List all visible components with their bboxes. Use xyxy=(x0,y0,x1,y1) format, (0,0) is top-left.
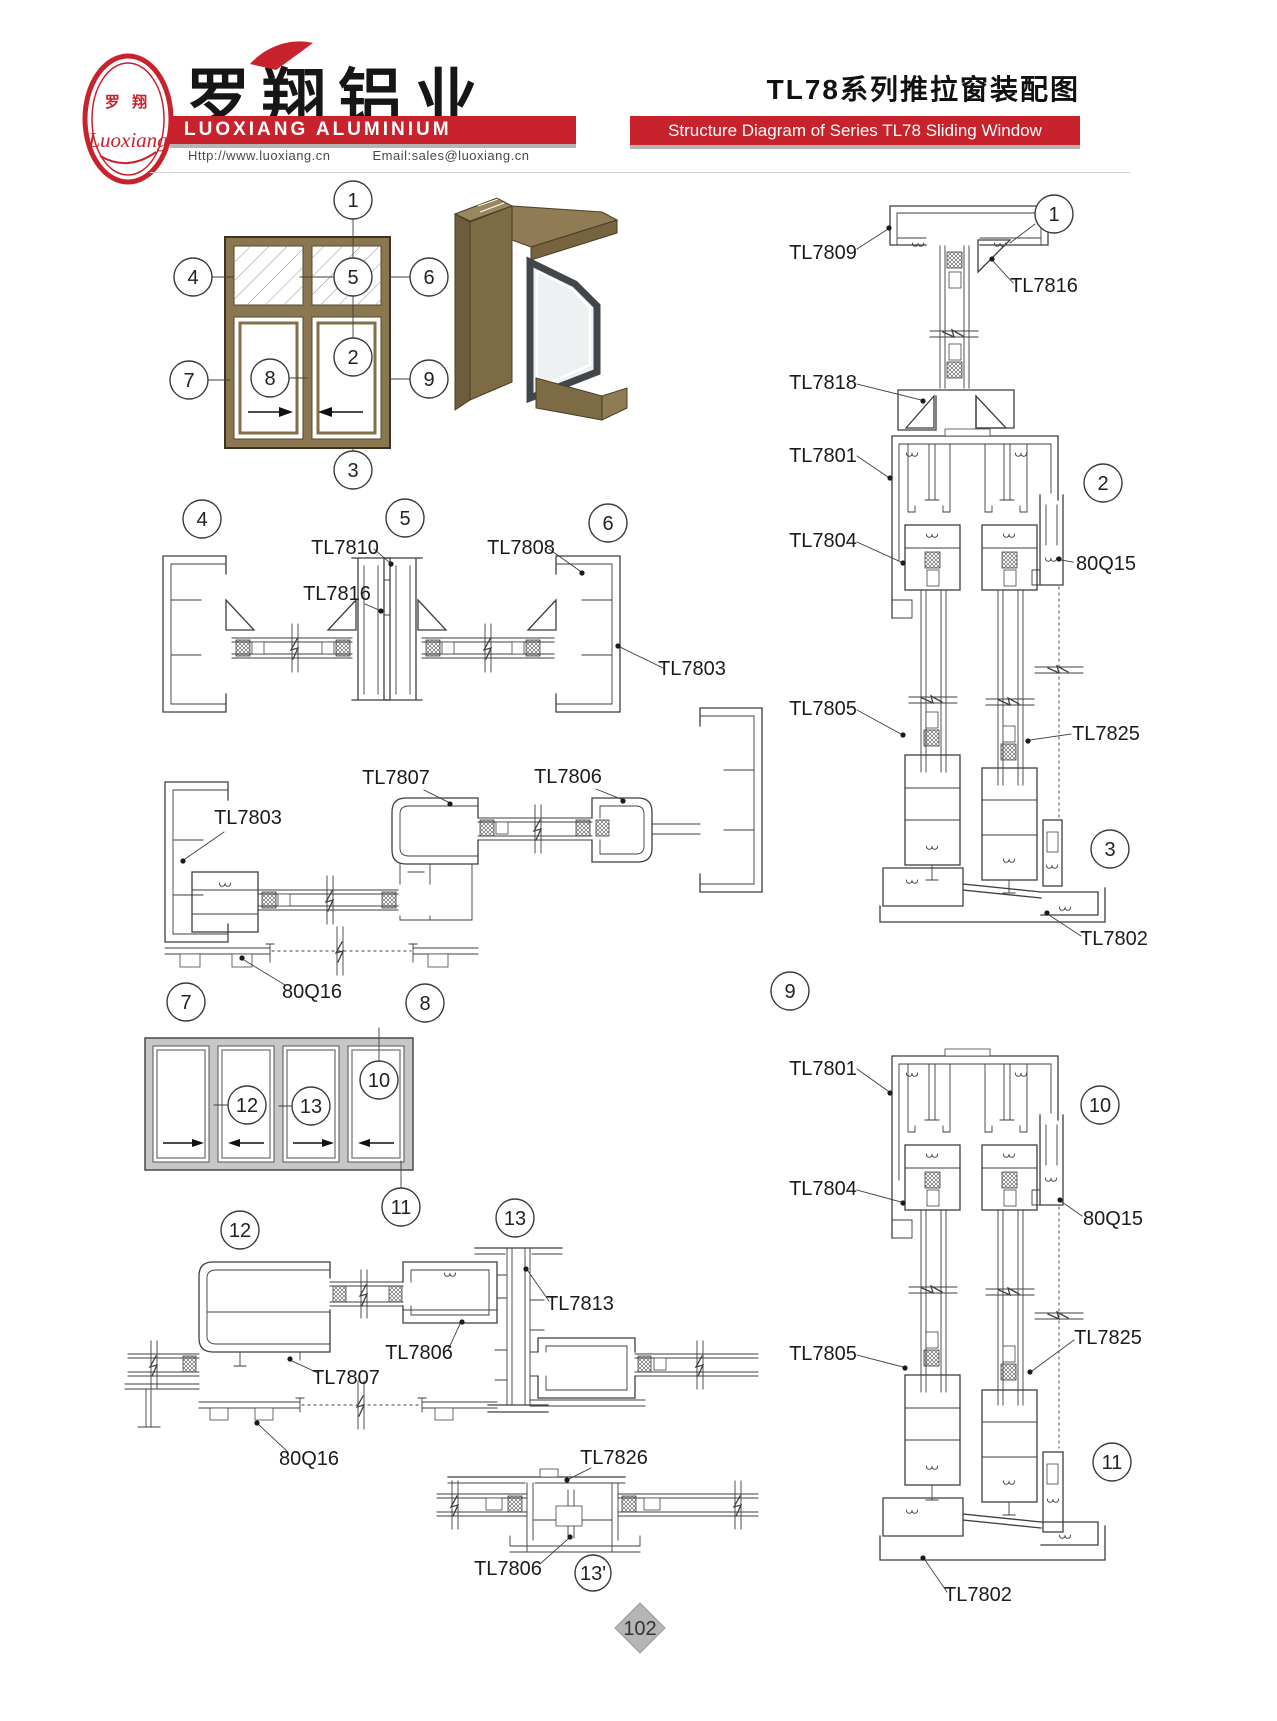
svg-text:4: 4 xyxy=(187,267,198,289)
svg-text:8: 8 xyxy=(264,368,275,390)
callout-2-detail: 2 xyxy=(1084,464,1122,502)
callout-9-section: 9 xyxy=(771,972,809,1010)
callout-12-section: 12 xyxy=(221,1211,259,1249)
part-label-tl7804-b: TL7804 xyxy=(789,1178,857,1200)
catalog-page: { "header": { "logo": { "cn": "罗 翔", "sc… xyxy=(0,0,1277,1721)
part-label-tl7807: TL7807 xyxy=(362,767,430,789)
part-label-tl7816: TL7816 xyxy=(303,583,371,605)
svg-text:4: 4 xyxy=(196,509,207,531)
logo-script-text: Luoxiang xyxy=(87,128,167,152)
callout-13: 13 xyxy=(292,1087,330,1125)
callout-7: 7 xyxy=(170,361,208,399)
company-logo: 罗 翔 Luoxiang xyxy=(80,52,176,188)
callout-1: 1 xyxy=(334,181,372,219)
svg-text:5: 5 xyxy=(399,508,410,530)
part-label-80q15: 80Q15 xyxy=(1076,553,1136,575)
svg-text:8: 8 xyxy=(419,993,430,1015)
callout-6-section: 6 xyxy=(589,504,627,542)
callout-5-section: 5 xyxy=(386,499,424,537)
part-label-tl7805: TL7805 xyxy=(789,698,857,720)
svg-text:1: 1 xyxy=(347,190,358,212)
part-label-tl7826: TL7826 xyxy=(580,1447,648,1469)
part-label-tl7801-b: TL7801 xyxy=(789,1058,857,1080)
svg-text:2: 2 xyxy=(1097,473,1108,495)
callout-11-detail: 11 xyxy=(1093,1443,1131,1481)
doc-title-cn: TL78系列推拉窗装配图 xyxy=(767,68,1080,108)
callout-5: 5 xyxy=(334,258,372,296)
callout-4-section: 4 xyxy=(183,500,221,538)
callout-12: 12 xyxy=(228,1086,266,1124)
svg-text:12: 12 xyxy=(236,1095,258,1117)
elevation-two-row-window: 1 4 5 6 2 7 8 9 3 xyxy=(170,181,448,489)
part-label-tl7806: TL7806 xyxy=(534,766,602,788)
part-label-80q16: 80Q16 xyxy=(282,981,342,1003)
part-label-tl7802-b: TL7802 xyxy=(944,1584,1012,1606)
part-label-tl7810: TL7810 xyxy=(311,537,379,559)
svg-text:6: 6 xyxy=(602,513,613,535)
part-label-tl7808: TL7808 xyxy=(487,537,555,559)
contact-line: Http://www.luoxiang.cnEmail:sales@luoxia… xyxy=(188,148,571,163)
callout-2: 2 xyxy=(334,338,372,376)
part-label-80q15-b: 80Q15 xyxy=(1083,1208,1143,1230)
part-label-tl7806-a: TL7806 xyxy=(385,1342,453,1364)
svg-text:9: 9 xyxy=(423,369,434,391)
callout-1-detail: 1 xyxy=(1035,195,1073,233)
callout-9: 9 xyxy=(410,360,448,398)
callout-3-detail: 3 xyxy=(1091,830,1129,868)
callout-3: 3 xyxy=(334,451,372,489)
callout-4: 4 xyxy=(174,258,212,296)
email-text: Email:sales@luoxiang.cn xyxy=(373,148,530,163)
part-label-tl7802: TL7802 xyxy=(1080,928,1148,950)
logo-swoosh-icon xyxy=(246,36,316,72)
callout-6: 6 xyxy=(410,258,448,296)
callout-8-section: 8 xyxy=(406,984,444,1022)
page-number: 102 xyxy=(623,1618,656,1640)
doc-title-en: Structure Diagram of Series TL78 Sliding… xyxy=(668,121,1042,141)
section-12-13: 12 13 xyxy=(125,1199,758,1591)
company-name-en: LUOXIANG ALUMINIUM xyxy=(170,119,452,141)
part-label-tl7807-b: TL7807 xyxy=(312,1367,380,1389)
part-label-tl7803: TL7803 xyxy=(658,658,726,680)
logo-cn-text: 罗 翔 xyxy=(105,93,151,111)
callout-13-section: 13 xyxy=(496,1199,534,1237)
part-label-tl7813: TL7813 xyxy=(546,1293,614,1315)
svg-text:10: 10 xyxy=(1089,1095,1111,1117)
svg-text:7: 7 xyxy=(180,992,191,1014)
part-label-tl7806-c: TL7806 xyxy=(474,1558,542,1580)
doc-title-banner: Structure Diagram of Series TL78 Sliding… xyxy=(630,116,1080,145)
part-label-tl7804: TL7804 xyxy=(789,530,857,552)
assembly-drawing: 1 4 5 6 2 7 8 9 3 xyxy=(0,0,1277,1721)
part-label-tl7801: TL7801 xyxy=(789,445,857,467)
svg-text:13: 13 xyxy=(300,1096,322,1118)
part-label-tl7809: TL7809 xyxy=(789,242,857,264)
svg-text:13: 13 xyxy=(504,1208,526,1230)
svg-text:10: 10 xyxy=(368,1070,390,1092)
svg-text:11: 11 xyxy=(1102,1452,1123,1474)
svg-text:11: 11 xyxy=(391,1197,412,1219)
elevation-four-pane-window: 10 12 13 11 xyxy=(145,1028,420,1226)
glass-hatch xyxy=(234,246,303,305)
part-label-tl7825-b: TL7825 xyxy=(1074,1327,1142,1349)
svg-text:13': 13' xyxy=(580,1563,606,1585)
part-label-tl7803-left: TL7803 xyxy=(214,807,282,829)
svg-text:5: 5 xyxy=(347,267,358,289)
website-text: Http://www.luoxiang.cn xyxy=(188,148,331,163)
part-label-tl7818: TL7818 xyxy=(789,372,857,394)
svg-text:12: 12 xyxy=(229,1220,251,1242)
svg-text:3: 3 xyxy=(347,460,358,482)
company-banner-en: LUOXIANG ALUMINIUM xyxy=(170,116,576,144)
callout-8: 8 xyxy=(251,359,289,397)
section-4-5-6: TL7810 TL7816 TL7808 TL7803 4 5 6 xyxy=(163,499,726,712)
part-label-tl7825: TL7825 xyxy=(1072,723,1140,745)
svg-text:6: 6 xyxy=(423,267,434,289)
callout-10: 10 xyxy=(360,1061,398,1099)
svg-text:2: 2 xyxy=(347,347,358,369)
callout-7-section: 7 xyxy=(167,983,205,1021)
part-label-tl7816-top: TL7816 xyxy=(1010,275,1078,297)
svg-text:3: 3 xyxy=(1104,839,1115,861)
detail-right-top: TL7809 TL7816 TL7818 TL7801 TL7804 80Q15… xyxy=(789,195,1148,950)
window-corner-3d-render xyxy=(455,198,627,420)
svg-text:7: 7 xyxy=(183,370,194,392)
callout-13-prime: 13' xyxy=(575,1555,611,1591)
svg-text:9: 9 xyxy=(784,981,795,1003)
header-divider xyxy=(150,172,1130,173)
section-7-8-9: TL7803 TL7807 TL7806 80Q16 7 8 xyxy=(165,708,762,1022)
detail-right-bottom: TL7801 TL7804 80Q15 TL7805 TL7825 TL7802… xyxy=(771,972,1143,1606)
callout-11: 11 xyxy=(382,1188,420,1226)
page-number-badge: 102 xyxy=(615,1603,665,1653)
svg-text:1: 1 xyxy=(1048,204,1059,226)
part-label-80q16-b: 80Q16 xyxy=(279,1448,339,1470)
callout-10-detail: 10 xyxy=(1081,1086,1119,1124)
part-label-tl7805-b: TL7805 xyxy=(789,1343,857,1365)
